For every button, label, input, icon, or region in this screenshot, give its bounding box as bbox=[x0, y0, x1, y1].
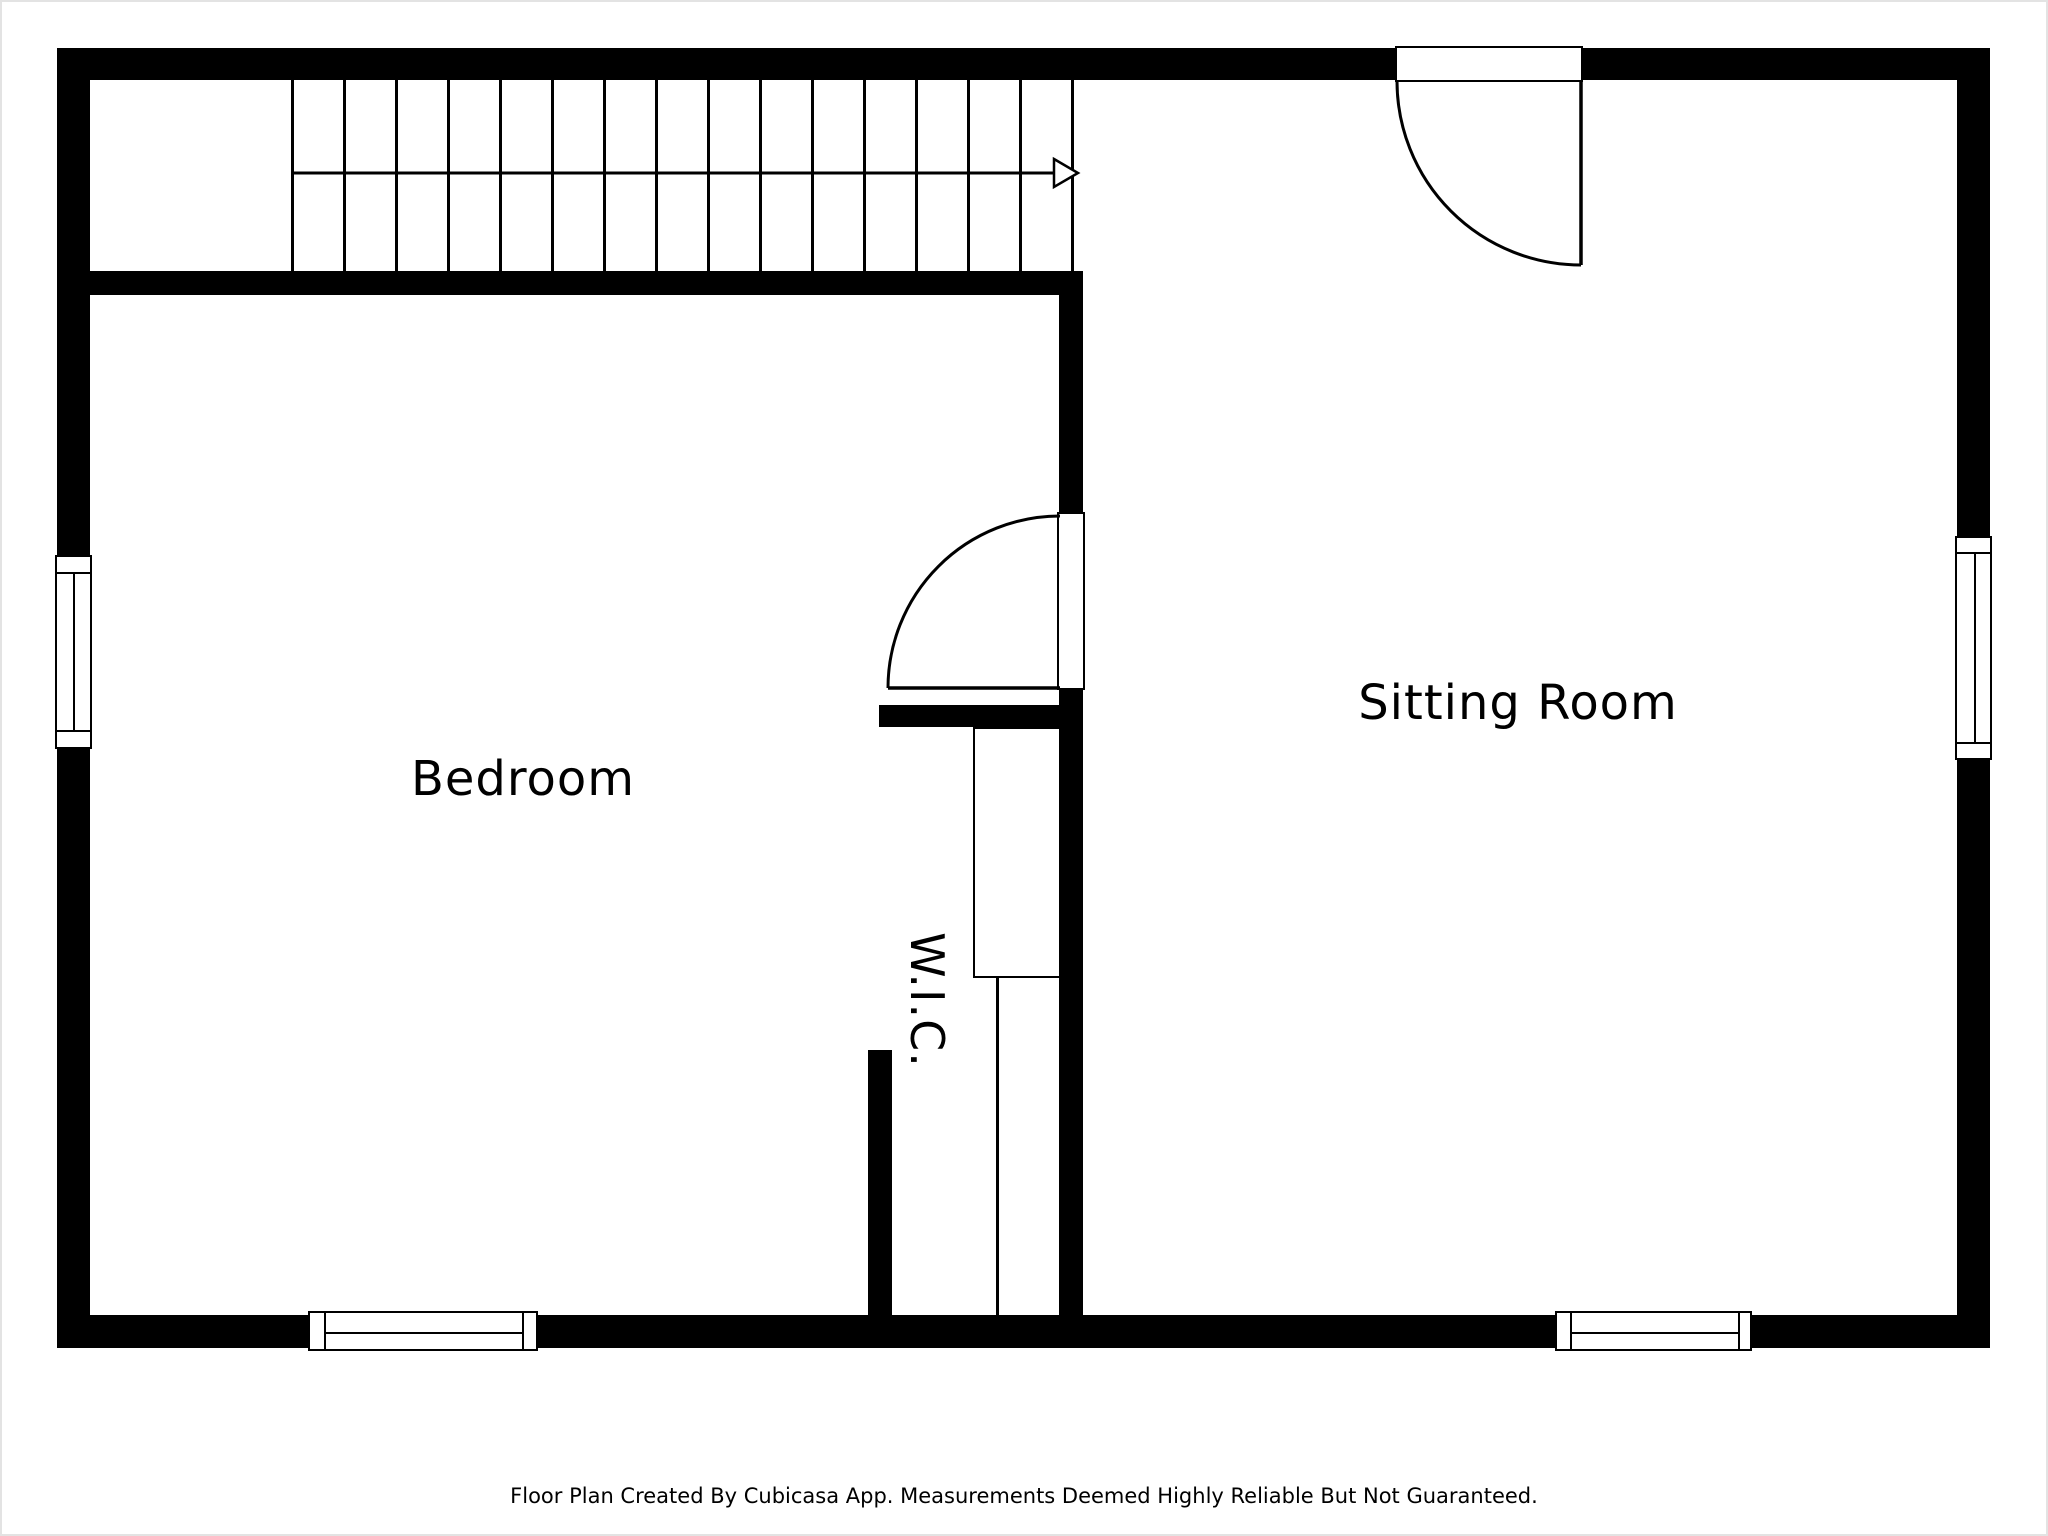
room-label-sitting-room: Sitting Room bbox=[1358, 675, 1678, 731]
plan-symbols-overlay bbox=[0, 0, 2048, 1536]
floor-plan-canvas: Bedroom Sitting Room W.I.C. Floor Plan C… bbox=[0, 0, 2048, 1536]
entry-door-swing-arc bbox=[1397, 81, 1581, 265]
room-label-bedroom: Bedroom bbox=[411, 751, 635, 807]
bedroom-door-swing-arc bbox=[888, 516, 1060, 688]
stairs-direction-arrow-head bbox=[1054, 159, 1078, 187]
room-label-wic: W.I.C. bbox=[900, 932, 954, 1068]
footer-disclaimer: Floor Plan Created By Cubicasa App. Meas… bbox=[0, 1484, 2048, 1508]
